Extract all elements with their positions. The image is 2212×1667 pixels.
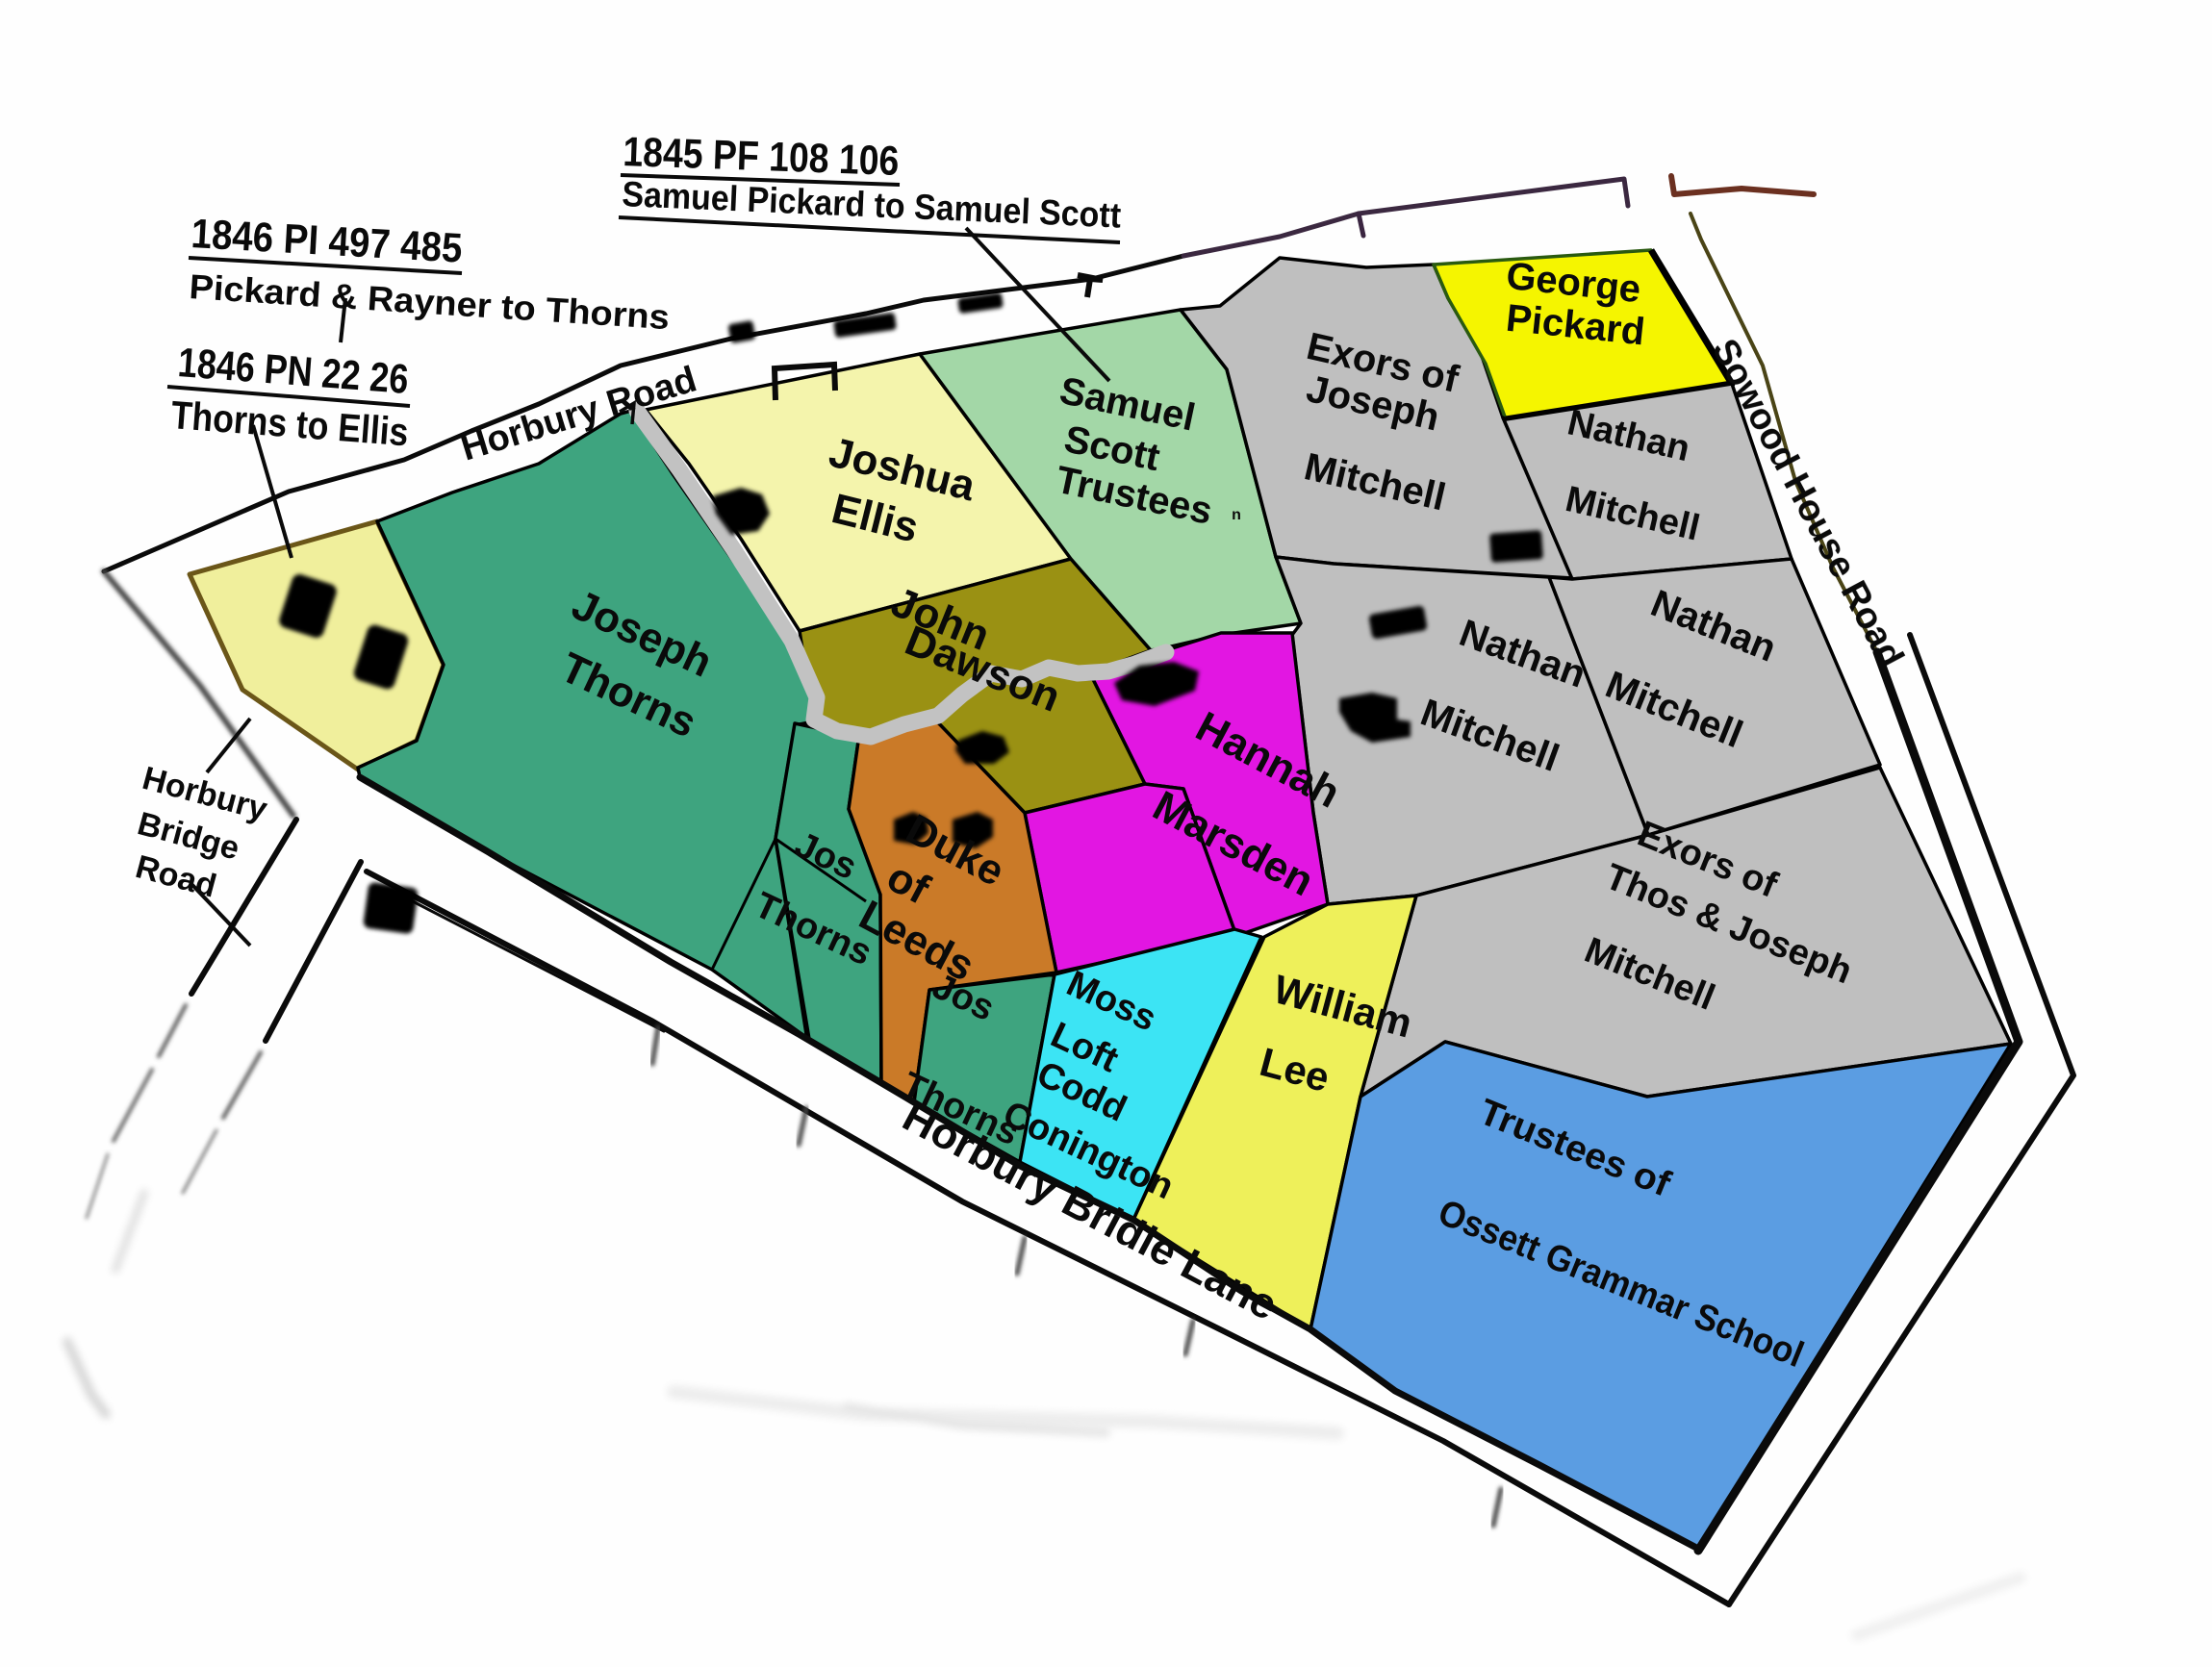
svg-text:n: n xyxy=(1232,507,1241,523)
